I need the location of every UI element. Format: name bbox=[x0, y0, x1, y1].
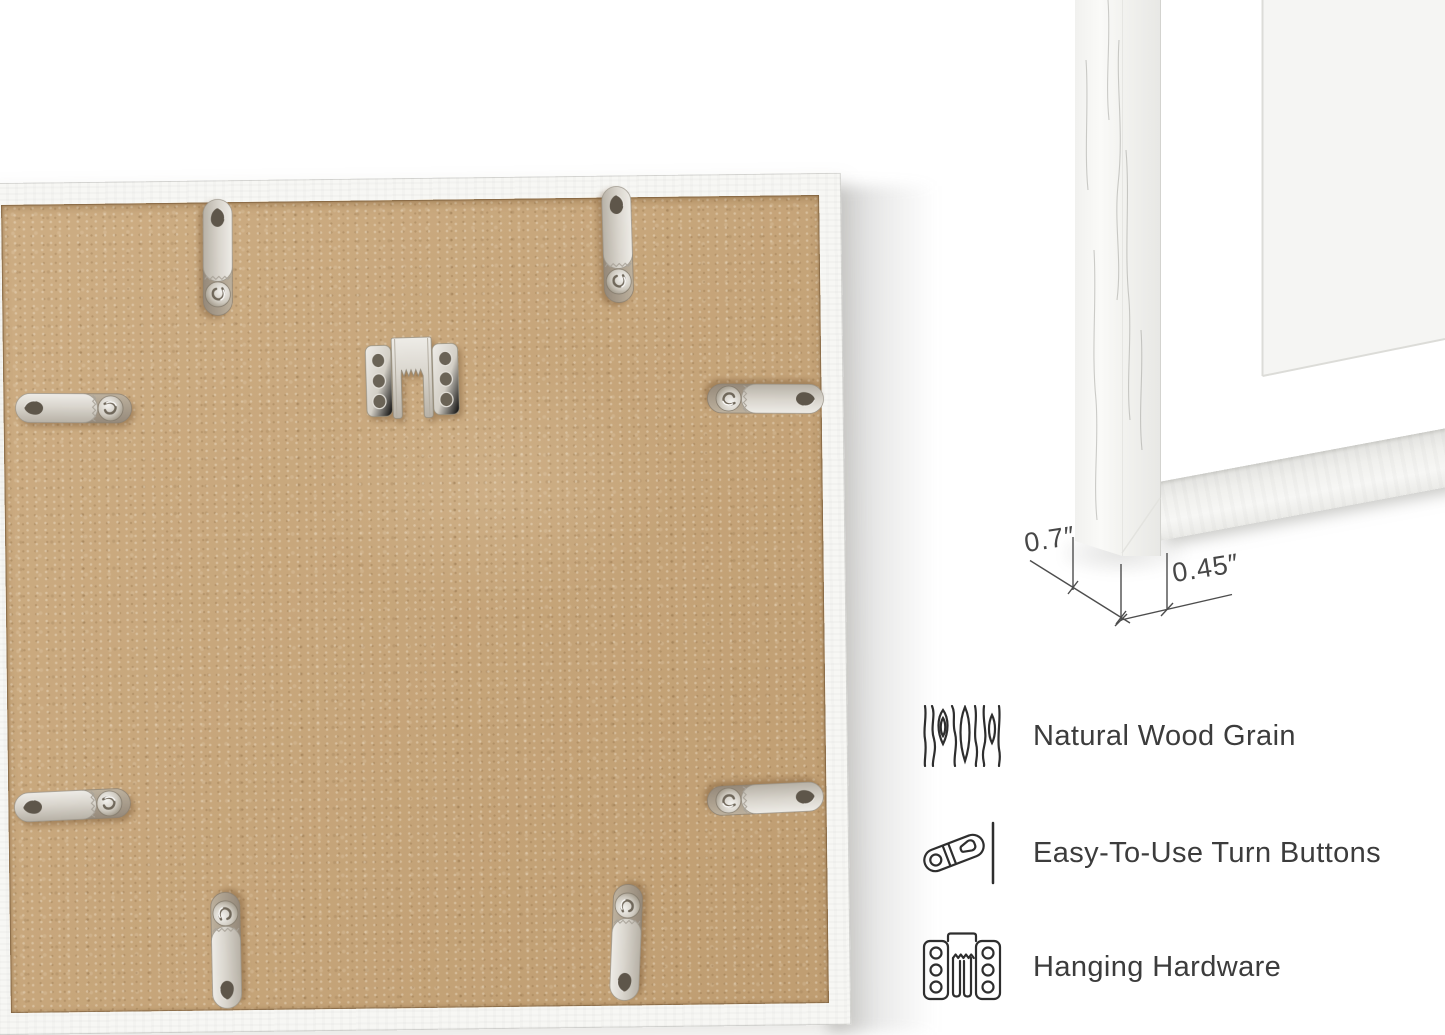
turn-button-top-left bbox=[200, 197, 236, 317]
turn-button-top-right bbox=[598, 184, 638, 305]
frame-wall-shadow bbox=[828, 186, 978, 1032]
feature-label: Natural Wood Grain bbox=[1033, 720, 1296, 753]
mdf-backing-board bbox=[1, 195, 829, 1013]
frame-back-photo bbox=[0, 173, 851, 1035]
turn-button-icon bbox=[920, 820, 1004, 886]
turn-button-bottom-right bbox=[606, 882, 647, 1003]
frame-corner-photo bbox=[1056, 0, 1445, 604]
feature-row-hanging-hardware: Hanging Hardware bbox=[920, 931, 1281, 1003]
feature-label: Hanging Hardware bbox=[1033, 951, 1281, 984]
turn-button-bottom-left bbox=[207, 890, 246, 1011]
picture-opening bbox=[1263, 0, 1445, 377]
hanging-hardware-icon bbox=[920, 931, 1004, 1003]
wood-grain-icon bbox=[920, 705, 1004, 767]
feature-label: Easy-To-Use Turn Buttons bbox=[1033, 837, 1381, 870]
frame-side-profile bbox=[1075, 0, 1161, 556]
turn-button-left-upper bbox=[13, 390, 133, 427]
turn-button-right-upper bbox=[705, 380, 825, 417]
feature-row-wood-grain: Natural Wood Grain bbox=[920, 700, 1296, 772]
turn-button-right-lower bbox=[705, 778, 827, 820]
turn-button-left-lower bbox=[12, 784, 134, 826]
sawtooth-hanger bbox=[364, 334, 460, 422]
feature-row-turn-buttons: Easy-To-Use Turn Buttons bbox=[920, 817, 1381, 889]
